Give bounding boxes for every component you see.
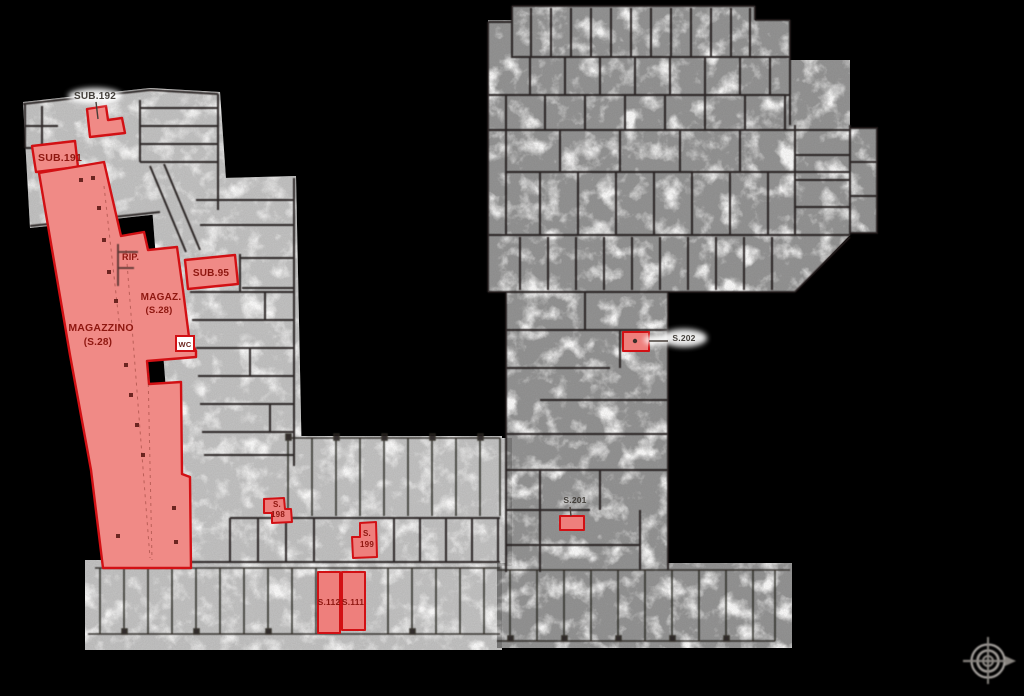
label-rip: RIP. — [122, 252, 139, 262]
label-magaz-line2: (S.28) — [145, 305, 172, 316]
label-s202: S.202 — [672, 333, 695, 343]
label-s199-line1: S. — [363, 529, 371, 538]
floor-plan-svg: SUB.192 SUB.191 RIP. SUB.95 MAGAZ. (S.28… — [0, 0, 1024, 696]
s202-center-dot — [633, 339, 637, 343]
label-sub95: SUB.95 — [193, 268, 229, 279]
floor-plan-screenshot: SUB.192 SUB.191 RIP. SUB.95 MAGAZ. (S.28… — [0, 0, 1024, 696]
label-magaz-line1: MAGAZ. — [141, 292, 182, 303]
highlight-s201 — [560, 516, 584, 530]
label-s198-line2: 198 — [271, 510, 285, 519]
label-wc: WC — [179, 340, 192, 349]
label-s199-line2: 199 — [360, 540, 374, 549]
label-s198-line1: S. — [273, 500, 281, 509]
label-s111: S.111 — [342, 597, 364, 607]
label-sub192: SUB.192 — [74, 91, 116, 102]
label-sub191: SUB.191 — [38, 152, 82, 164]
label-magazzino-line2: (S.28) — [84, 337, 112, 348]
label-s112: S.112 — [318, 597, 341, 607]
label-s201: S.201 — [563, 495, 586, 505]
label-magazzino-line1: MAGAZZINO — [68, 322, 133, 334]
